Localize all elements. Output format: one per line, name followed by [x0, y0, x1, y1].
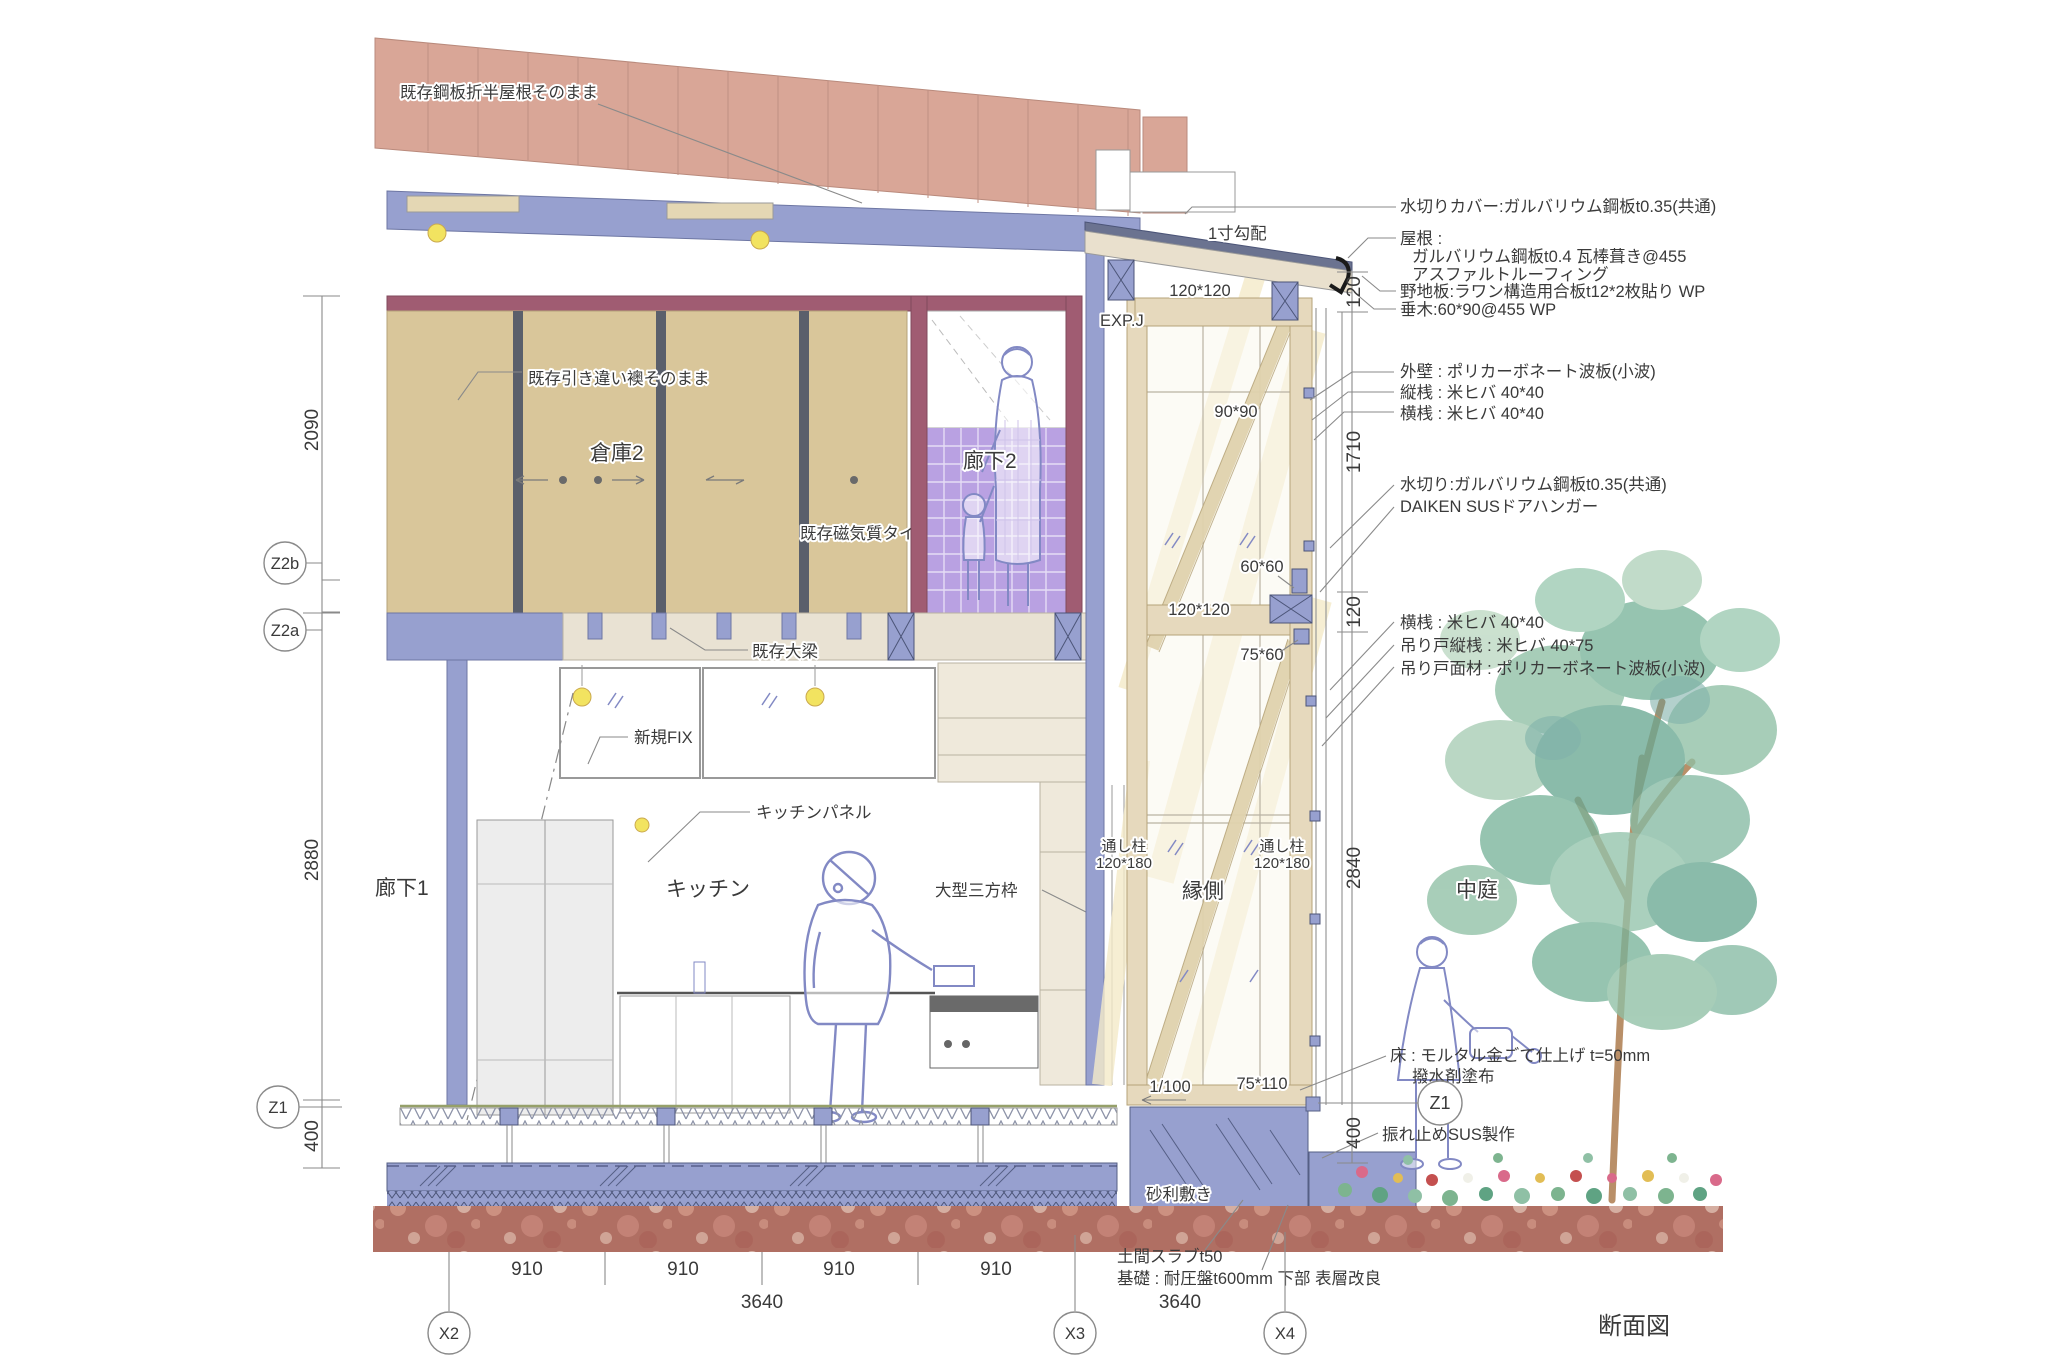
svg-text:ガルバリウム鋼板t0.4 瓦棒葺き@455: ガルバリウム鋼板t0.4 瓦棒葺き@455	[1412, 247, 1686, 266]
bubble-z2a: Z2a	[271, 622, 300, 640]
svg-text:3640: 3640	[741, 1292, 783, 1313]
doma-label: 土間スラブt50	[1117, 1246, 1222, 1266]
purlin	[407, 196, 519, 212]
gravel-label: 砂利敷き	[1146, 1185, 1212, 1204]
existing-beam-band: 既存大梁	[387, 613, 1093, 661]
slope-label: 1寸勾配	[1208, 224, 1267, 243]
svg-text:120*120: 120*120	[1169, 282, 1230, 300]
roof-existing-label: 既存鋼板折半屋根そのまま	[400, 83, 598, 102]
svg-text:120*180: 120*180	[1254, 855, 1310, 872]
svg-text:910: 910	[667, 1259, 699, 1280]
bubble-z1-left: Z1	[268, 1099, 287, 1117]
svg-text:90*90: 90*90	[1214, 403, 1257, 421]
svg-text:120*120: 120*120	[1168, 601, 1229, 619]
fusuma-label: 既存引き違い襖そのまま	[528, 369, 710, 388]
section-drawing: 既存鋼板折半屋根そのまま 既存引き違い襖そのまま 倉庫2 既存磁気質タイル	[0, 0, 2048, 1365]
room-label-kitchen: キッチン	[666, 878, 750, 901]
fix-label: 新規FIX	[634, 728, 693, 747]
bubble-x2: X2	[439, 1325, 459, 1343]
fix-window-band: 新規FIX	[560, 663, 1100, 782]
drawing-title: 断面図	[1598, 1313, 1670, 1340]
soil-band	[373, 1206, 1723, 1252]
svg-text:吊り戸縦桟 : 米ヒバ 40*75: 吊り戸縦桟 : 米ヒバ 40*75	[1400, 636, 1593, 655]
svg-text:400: 400	[1344, 1117, 1365, 1149]
stove-appliance	[930, 966, 1038, 1068]
svg-text:1710: 1710	[1344, 431, 1365, 473]
ceiling-light-icon	[751, 231, 769, 249]
kitchen-panel-label: キッチンパネル	[756, 803, 872, 822]
svg-text:60*60: 60*60	[1240, 558, 1283, 576]
bubble-x3: X3	[1065, 1325, 1085, 1343]
corridor2-area: 廊下2	[911, 296, 1082, 613]
svg-text:通し柱: 通し柱	[1101, 838, 1146, 855]
ceiling-light-icon	[428, 224, 446, 242]
existing-folded-roof: 既存鋼板折半屋根そのまま	[375, 38, 1187, 216]
svg-text:縦桟 : 米ヒバ 40*40: 縦桟 : 米ヒバ 40*40	[1400, 383, 1544, 402]
svg-text:910: 910	[511, 1259, 543, 1280]
svg-text:横桟 : 米ヒバ 40*40: 横桟 : 米ヒバ 40*40	[1400, 404, 1544, 423]
beam-label: 既存大梁	[752, 642, 818, 661]
room-label-engawa: 縁側	[1182, 880, 1224, 903]
svg-text:75*60: 75*60	[1240, 646, 1283, 664]
svg-text:撥水剤塗布: 撥水剤塗布	[1412, 1066, 1495, 1086]
bubble-z2b: Z2b	[271, 555, 299, 573]
svg-text:吊り戸面材 : ポリカーボネート波板(小波): 吊り戸面材 : ポリカーボネート波板(小波)	[1400, 659, 1705, 678]
frame-label: 大型三方枠	[935, 881, 1018, 900]
bubble-x4: X4	[1275, 1325, 1295, 1343]
svg-text:2840: 2840	[1344, 847, 1365, 889]
floor-slab-soil	[373, 1106, 1723, 1252]
bottle-icon	[694, 962, 705, 993]
svg-text:野地板:ラワン構造用合板t12*2枚貼り WP: 野地板:ラワン構造用合板t12*2枚貼り WP	[1400, 282, 1705, 301]
daiken-note: DAIKEN SUSドアハンガー	[1400, 497, 1598, 516]
svg-text:75*110: 75*110	[1236, 1075, 1287, 1093]
svg-text:910: 910	[980, 1259, 1012, 1280]
svg-text:垂木:60*90@455 WP: 垂木:60*90@455 WP	[1400, 300, 1556, 319]
purlin	[667, 203, 773, 219]
svg-text:横桟 : 米ヒバ 40*40: 横桟 : 米ヒバ 40*40	[1400, 613, 1544, 632]
expj-label: EXP.J	[1100, 312, 1144, 330]
room-label-storage2: 倉庫2	[590, 442, 644, 465]
room-label-corridor2: 廊下2	[963, 450, 1017, 473]
svg-text:屋根 :: 屋根 :	[1400, 229, 1442, 248]
svg-text:3640: 3640	[1159, 1292, 1201, 1313]
section-drawing-canvas: 既存鋼板折半屋根そのまま 既存引き違い襖そのまま 倉庫2 既存磁気質タイル	[0, 0, 2048, 1365]
mizukiri-note: 水切り:ガルバリウム鋼板t0.35(共通)	[1400, 475, 1667, 494]
room-label-corridor1: 廊下1	[375, 877, 429, 900]
sus-note: 振れ止めSUS製作	[1382, 1125, 1515, 1144]
svg-text:通し柱: 通し柱	[1259, 838, 1304, 855]
svg-text:アスファルトルーフィング: アスファルトルーフィング	[1412, 265, 1609, 284]
room-label-courtyard: 中庭	[1456, 879, 1498, 902]
svg-text:床 : モルタル金ごて仕上げ t=50mm: 床 : モルタル金ごて仕上げ t=50mm	[1390, 1046, 1650, 1065]
svg-text:120: 120	[1344, 596, 1365, 628]
foundation-label: 基礎 : 耐圧盤t600mm 下部 表層改良	[1117, 1269, 1381, 1288]
floor-slope-label: 1/100	[1149, 1078, 1190, 1096]
ceiling-light-icon	[635, 818, 649, 832]
svg-text:120*180: 120*180	[1096, 855, 1152, 872]
mizukiri-cover-note: 水切りカバー:ガルバリウム鋼板t0.35(共通)	[1400, 197, 1716, 216]
svg-text:120: 120	[1344, 276, 1365, 308]
svg-text:910: 910	[823, 1259, 855, 1280]
svg-text:外壁 : ポリカーボネート波板(小波): 外壁 : ポリカーボネート波板(小波)	[1400, 362, 1656, 381]
person-cooking-sketch	[805, 852, 933, 1122]
bubble-z1-right: Z1	[1429, 1093, 1450, 1113]
svg-text:400: 400	[302, 1120, 323, 1152]
svg-text:2880: 2880	[302, 839, 323, 881]
svg-text:2090: 2090	[302, 409, 323, 451]
